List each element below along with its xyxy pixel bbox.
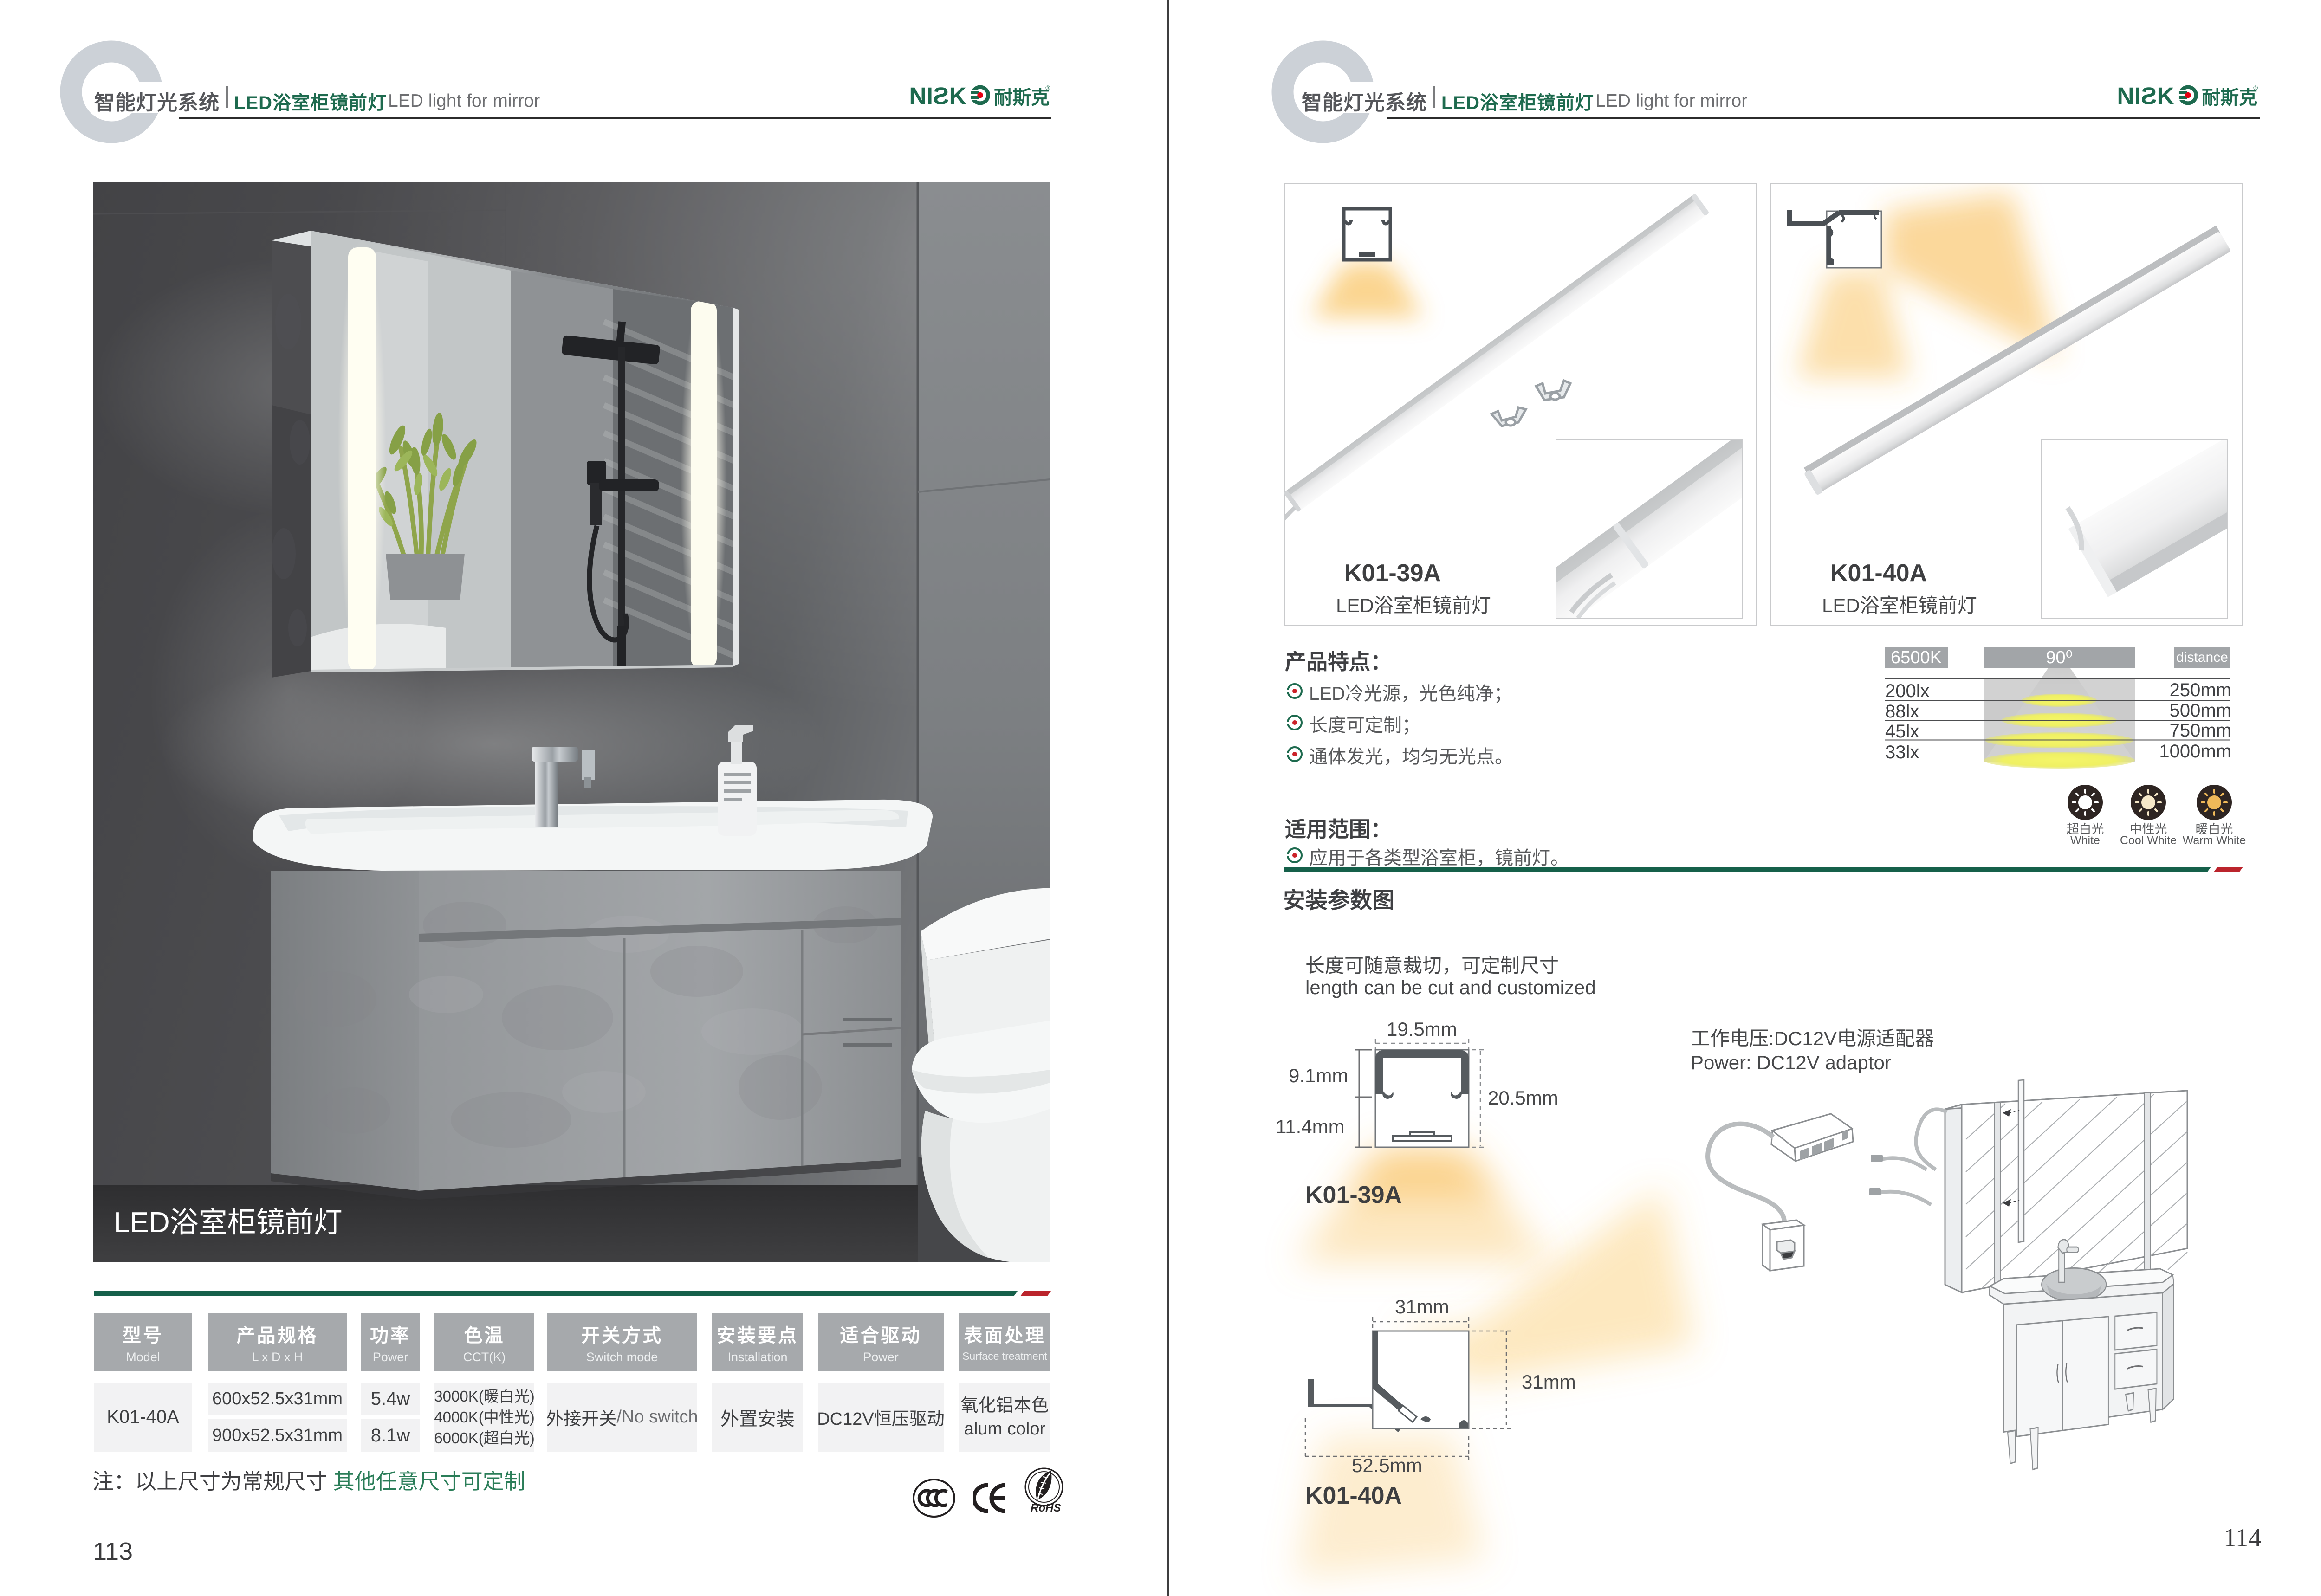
svg-text:33lx: 33lx — [1885, 742, 1919, 762]
svg-text:LED浴室柜镜前灯: LED浴室柜镜前灯 — [114, 1207, 343, 1239]
svg-text:20.5mm: 20.5mm — [1488, 1087, 1558, 1109]
svg-text:45lx: 45lx — [1885, 721, 1919, 742]
svg-text:200lx: 200lx — [1885, 681, 1930, 701]
svg-text:52.5mm: 52.5mm — [1352, 1454, 1422, 1476]
svg-text:31mm: 31mm — [1522, 1371, 1576, 1393]
svg-text:88lx: 88lx — [1885, 701, 1919, 722]
svg-text:1000mm: 1000mm — [2159, 741, 2231, 762]
svg-text:K01-40A: K01-40A — [1305, 1482, 1402, 1509]
svg-text:NIƧK: NIƧK — [2117, 84, 2174, 110]
svg-text:安装参数图: 安装参数图 — [1283, 888, 1394, 913]
svg-text:500mm: 500mm — [2170, 700, 2231, 721]
svg-text:distance: distance — [2176, 650, 2228, 665]
svg-text:6500K: 6500K — [1891, 648, 1942, 667]
svg-text:长度可随意裁切，可定制尺寸: 长度可随意裁切，可定制尺寸 — [1305, 955, 1559, 976]
svg-text:9.1mm: 9.1mm — [1289, 1065, 1348, 1086]
svg-text:耐斯克: 耐斯克 — [2202, 88, 2257, 108]
svg-text:LED浴室柜镜前灯: LED浴室柜镜前灯 — [1822, 594, 1977, 616]
svg-text:RoHS: RoHS — [1031, 1502, 1061, 1514]
svg-text:®: ® — [1045, 84, 1050, 91]
svg-text:Power: DC12V adaptor: Power: DC12V adaptor — [1691, 1052, 1891, 1073]
svg-text:LED浴室柜镜前灯: LED浴室柜镜前灯 — [1336, 594, 1491, 616]
svg-text:90⁰: 90⁰ — [2046, 648, 2073, 667]
svg-text:Cool White: Cool White — [2120, 834, 2177, 845]
svg-text:31mm: 31mm — [1395, 1296, 1449, 1318]
svg-text:®: ® — [2253, 84, 2258, 91]
svg-text:NIƧK: NIƧK — [909, 84, 966, 110]
svg-text:White: White — [2070, 834, 2100, 845]
svg-text:114: 114 — [2224, 1524, 2262, 1552]
svg-text:耐斯克: 耐斯克 — [994, 88, 1050, 108]
svg-text:K01-39A: K01-39A — [1305, 1182, 1402, 1208]
svg-text:19.5mm: 19.5mm — [1387, 1018, 1457, 1040]
svg-text:11.4mm: 11.4mm — [1276, 1116, 1345, 1137]
svg-text:工作电压:DC12V电源适配器: 工作电压:DC12V电源适配器 — [1691, 1027, 1934, 1049]
svg-text:length can be cut and customiz: length can be cut and customized — [1305, 976, 1596, 998]
svg-text:K01-40A: K01-40A — [1830, 560, 1927, 587]
svg-text:250mm: 250mm — [2170, 680, 2231, 700]
svg-text:Warm White: Warm White — [2183, 834, 2246, 845]
svg-text:K01-39A: K01-39A — [1344, 560, 1441, 587]
svg-text:750mm: 750mm — [2170, 720, 2231, 741]
